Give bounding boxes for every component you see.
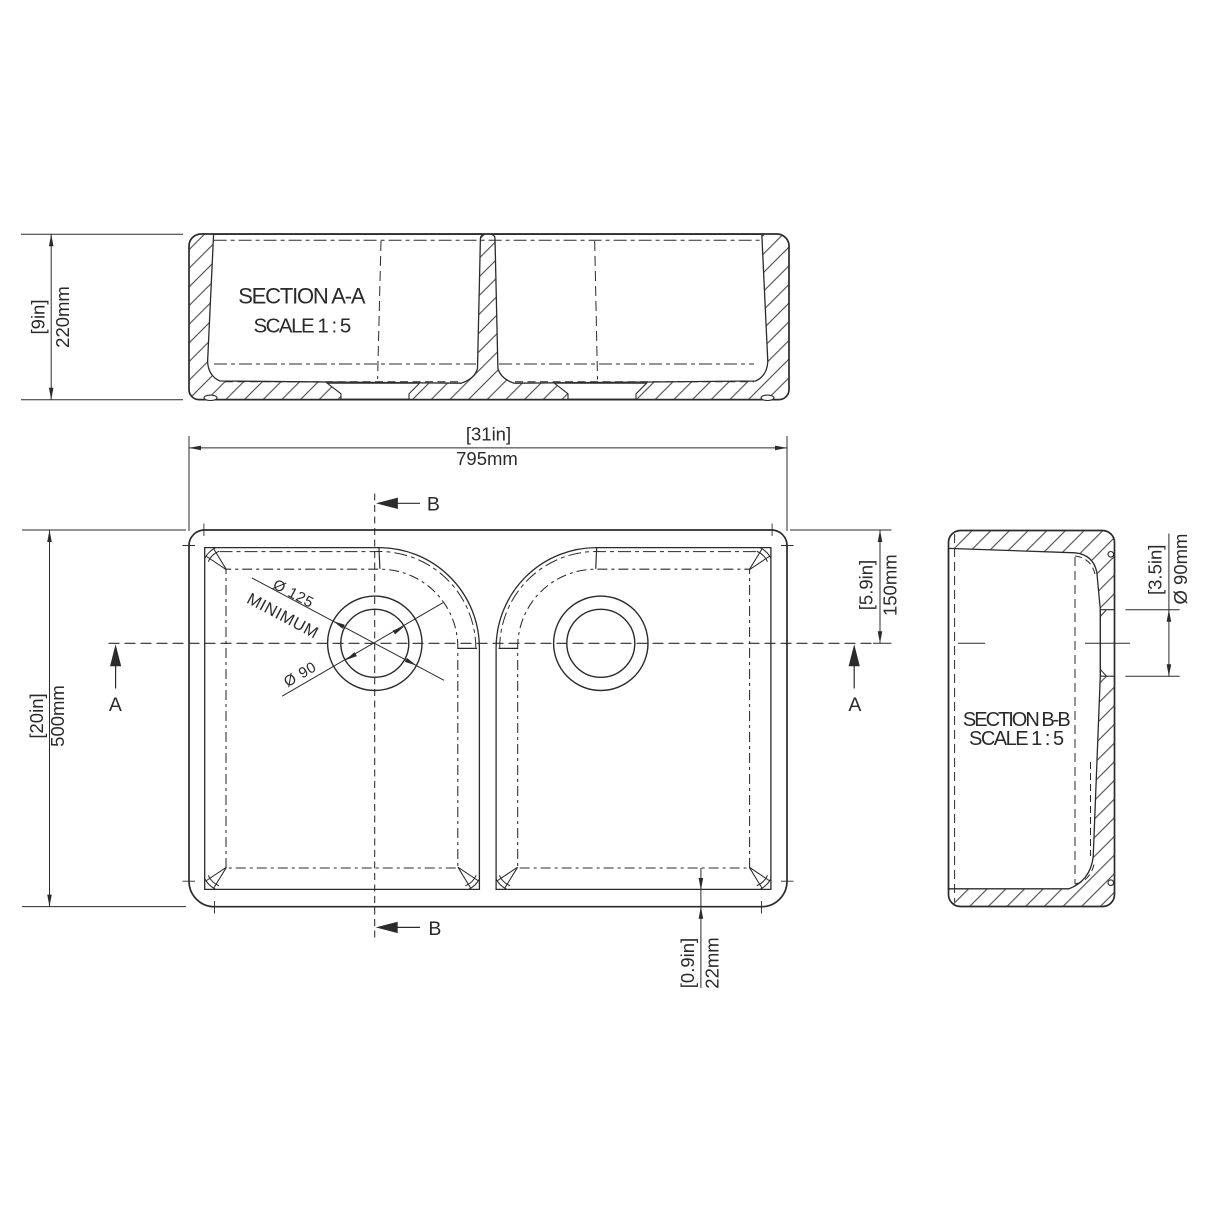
- svg-text:SCALE 1 : 5: SCALE 1 : 5: [253, 315, 350, 338]
- svg-text:B: B: [427, 494, 440, 516]
- svg-text:[9in]: [9in]: [28, 300, 49, 335]
- svg-text:150mm: 150mm: [880, 554, 901, 616]
- svg-text:[3.5in]: [3.5in]: [1145, 545, 1166, 595]
- svg-text:[31in]: [31in]: [466, 424, 511, 445]
- svg-text:A: A: [848, 694, 861, 716]
- svg-text:Ø 90mm: Ø 90mm: [1170, 534, 1191, 605]
- svg-text:795mm: 795mm: [456, 448, 518, 469]
- svg-text:500mm: 500mm: [47, 685, 68, 747]
- svg-text:22mm: 22mm: [701, 937, 722, 988]
- svg-text:A: A: [109, 694, 122, 716]
- svg-text:B: B: [428, 918, 441, 940]
- svg-text:[0.9in]: [0.9in]: [677, 938, 698, 988]
- svg-text:[5.9in]: [5.9in]: [855, 560, 876, 610]
- svg-text:SECTION A-A: SECTION A-A: [238, 284, 366, 309]
- svg-text:SCALE 1 : 5: SCALE 1 : 5: [969, 728, 1064, 750]
- svg-text:220mm: 220mm: [52, 286, 73, 348]
- svg-text:[20in]: [20in]: [26, 693, 47, 738]
